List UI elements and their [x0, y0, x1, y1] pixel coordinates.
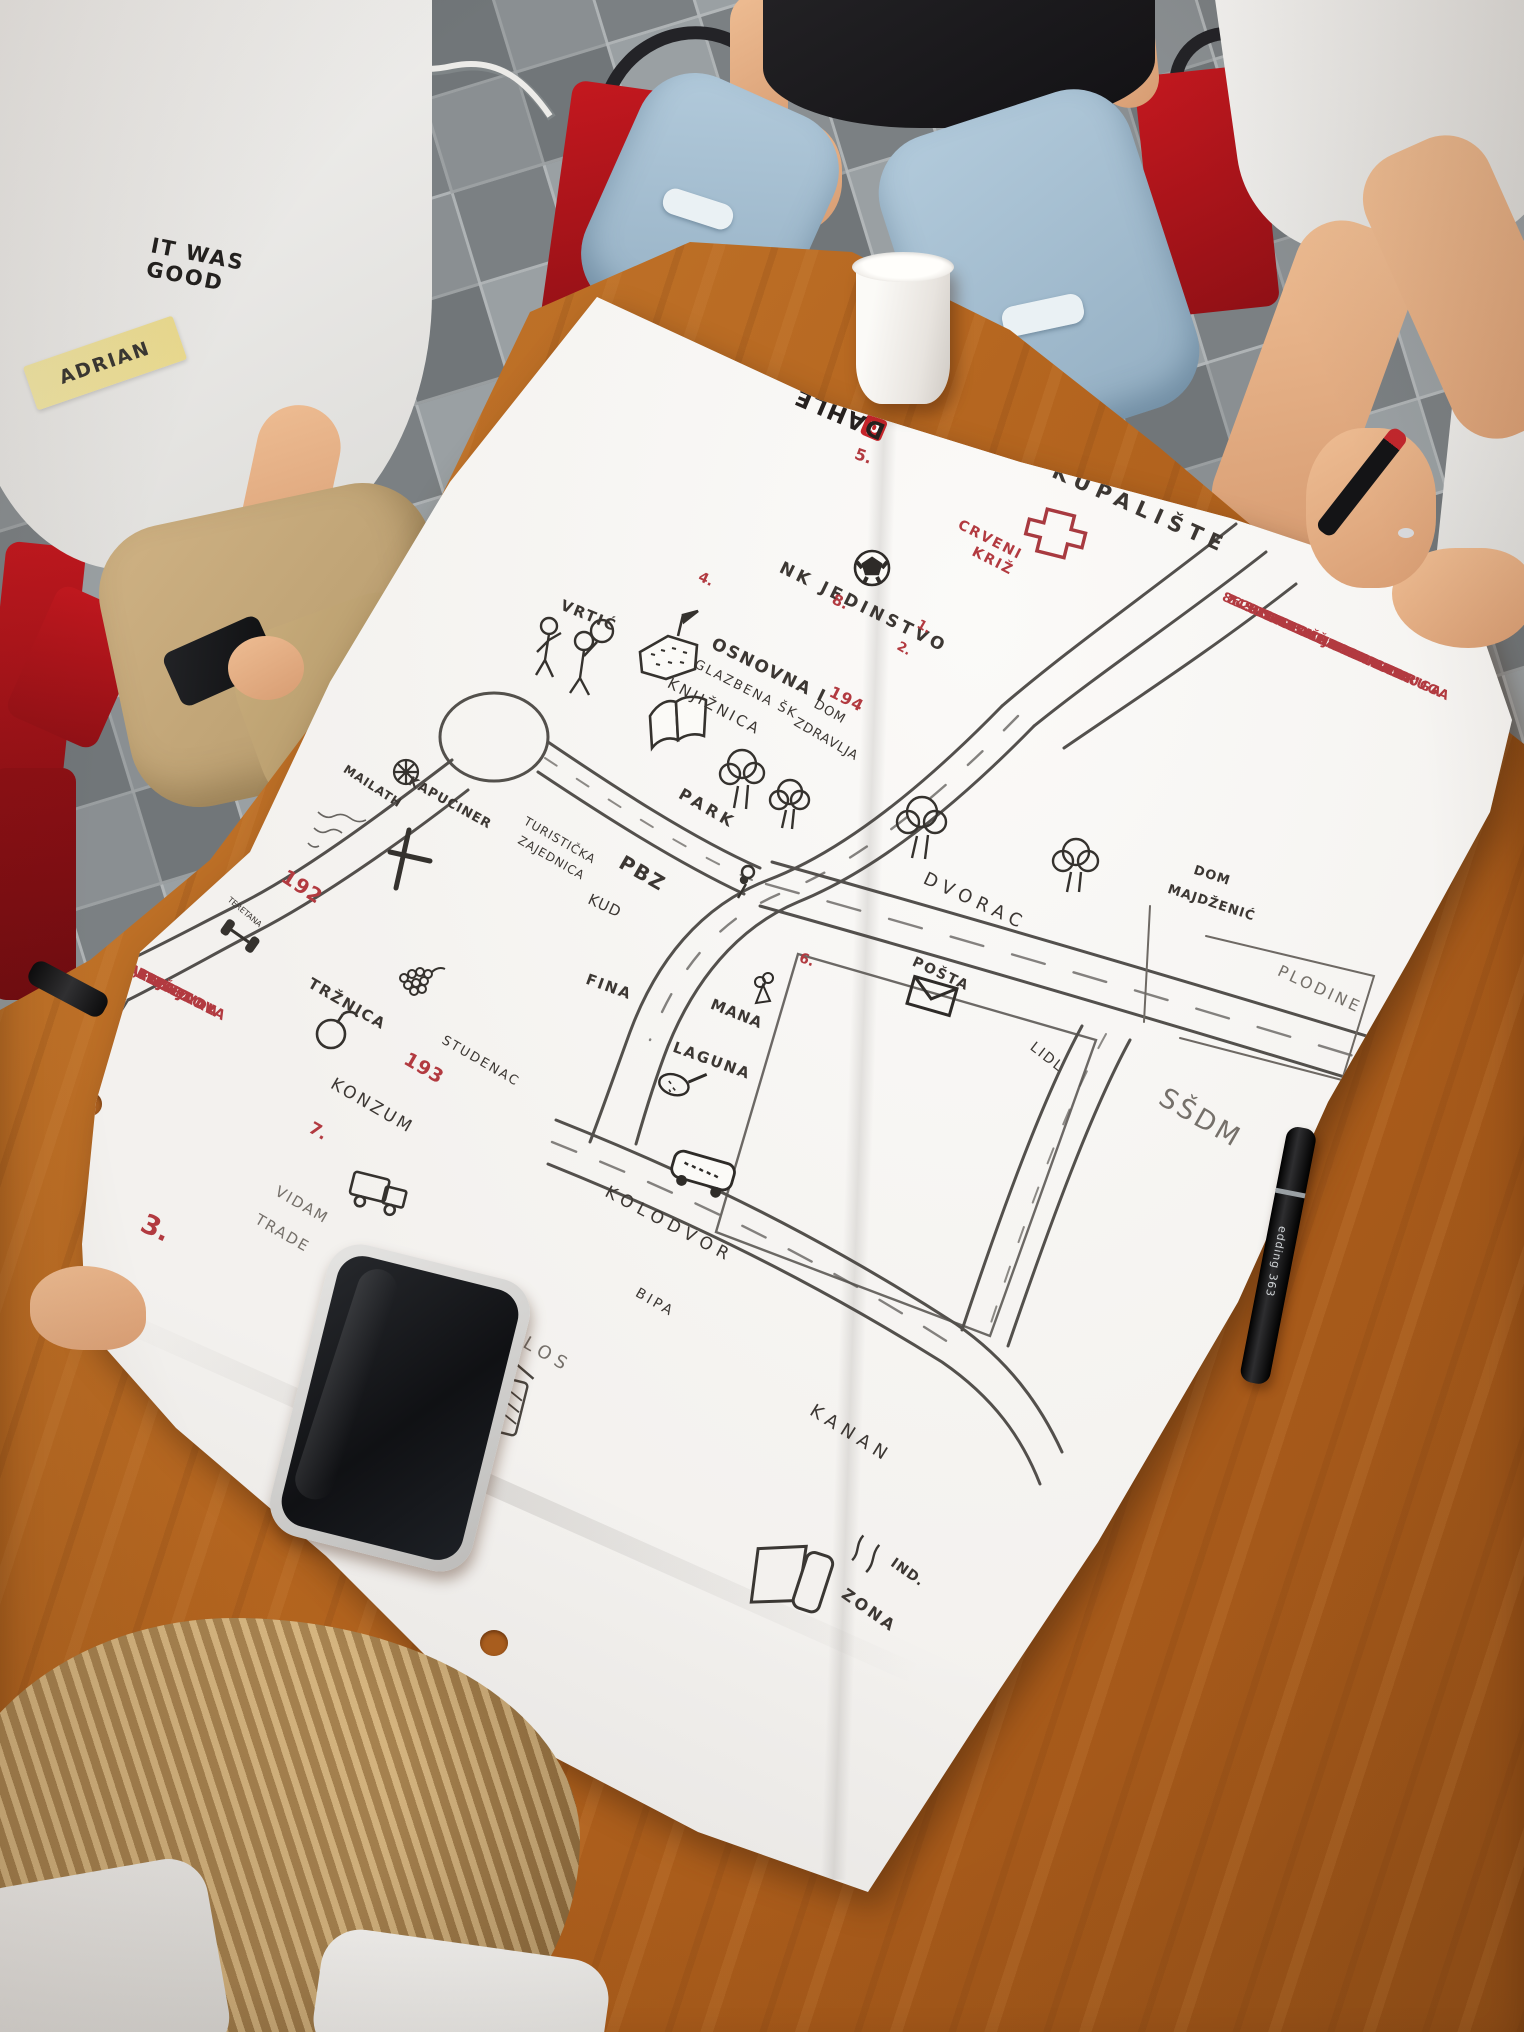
church-cross-icon — [390, 830, 430, 888]
red-cross-icon — [1022, 506, 1089, 562]
photo-scene: IT WAS GOOD ADRIAN d DAHLE — [0, 0, 1524, 2032]
football-icon — [855, 551, 889, 585]
traffic-light-icon — [738, 866, 754, 898]
frying-pan-icon — [657, 1061, 707, 1103]
truck-icon — [347, 1171, 409, 1217]
school-icon — [640, 611, 698, 679]
paper-cup — [852, 252, 954, 404]
grapes-icon — [400, 968, 445, 995]
apple-icon — [317, 1012, 357, 1048]
bus-icon — [667, 1149, 736, 1200]
left-person-hand — [228, 636, 304, 700]
tree-icon — [720, 750, 1098, 892]
finger-ring — [1398, 528, 1414, 538]
ice-cream-icon — [755, 973, 773, 1003]
